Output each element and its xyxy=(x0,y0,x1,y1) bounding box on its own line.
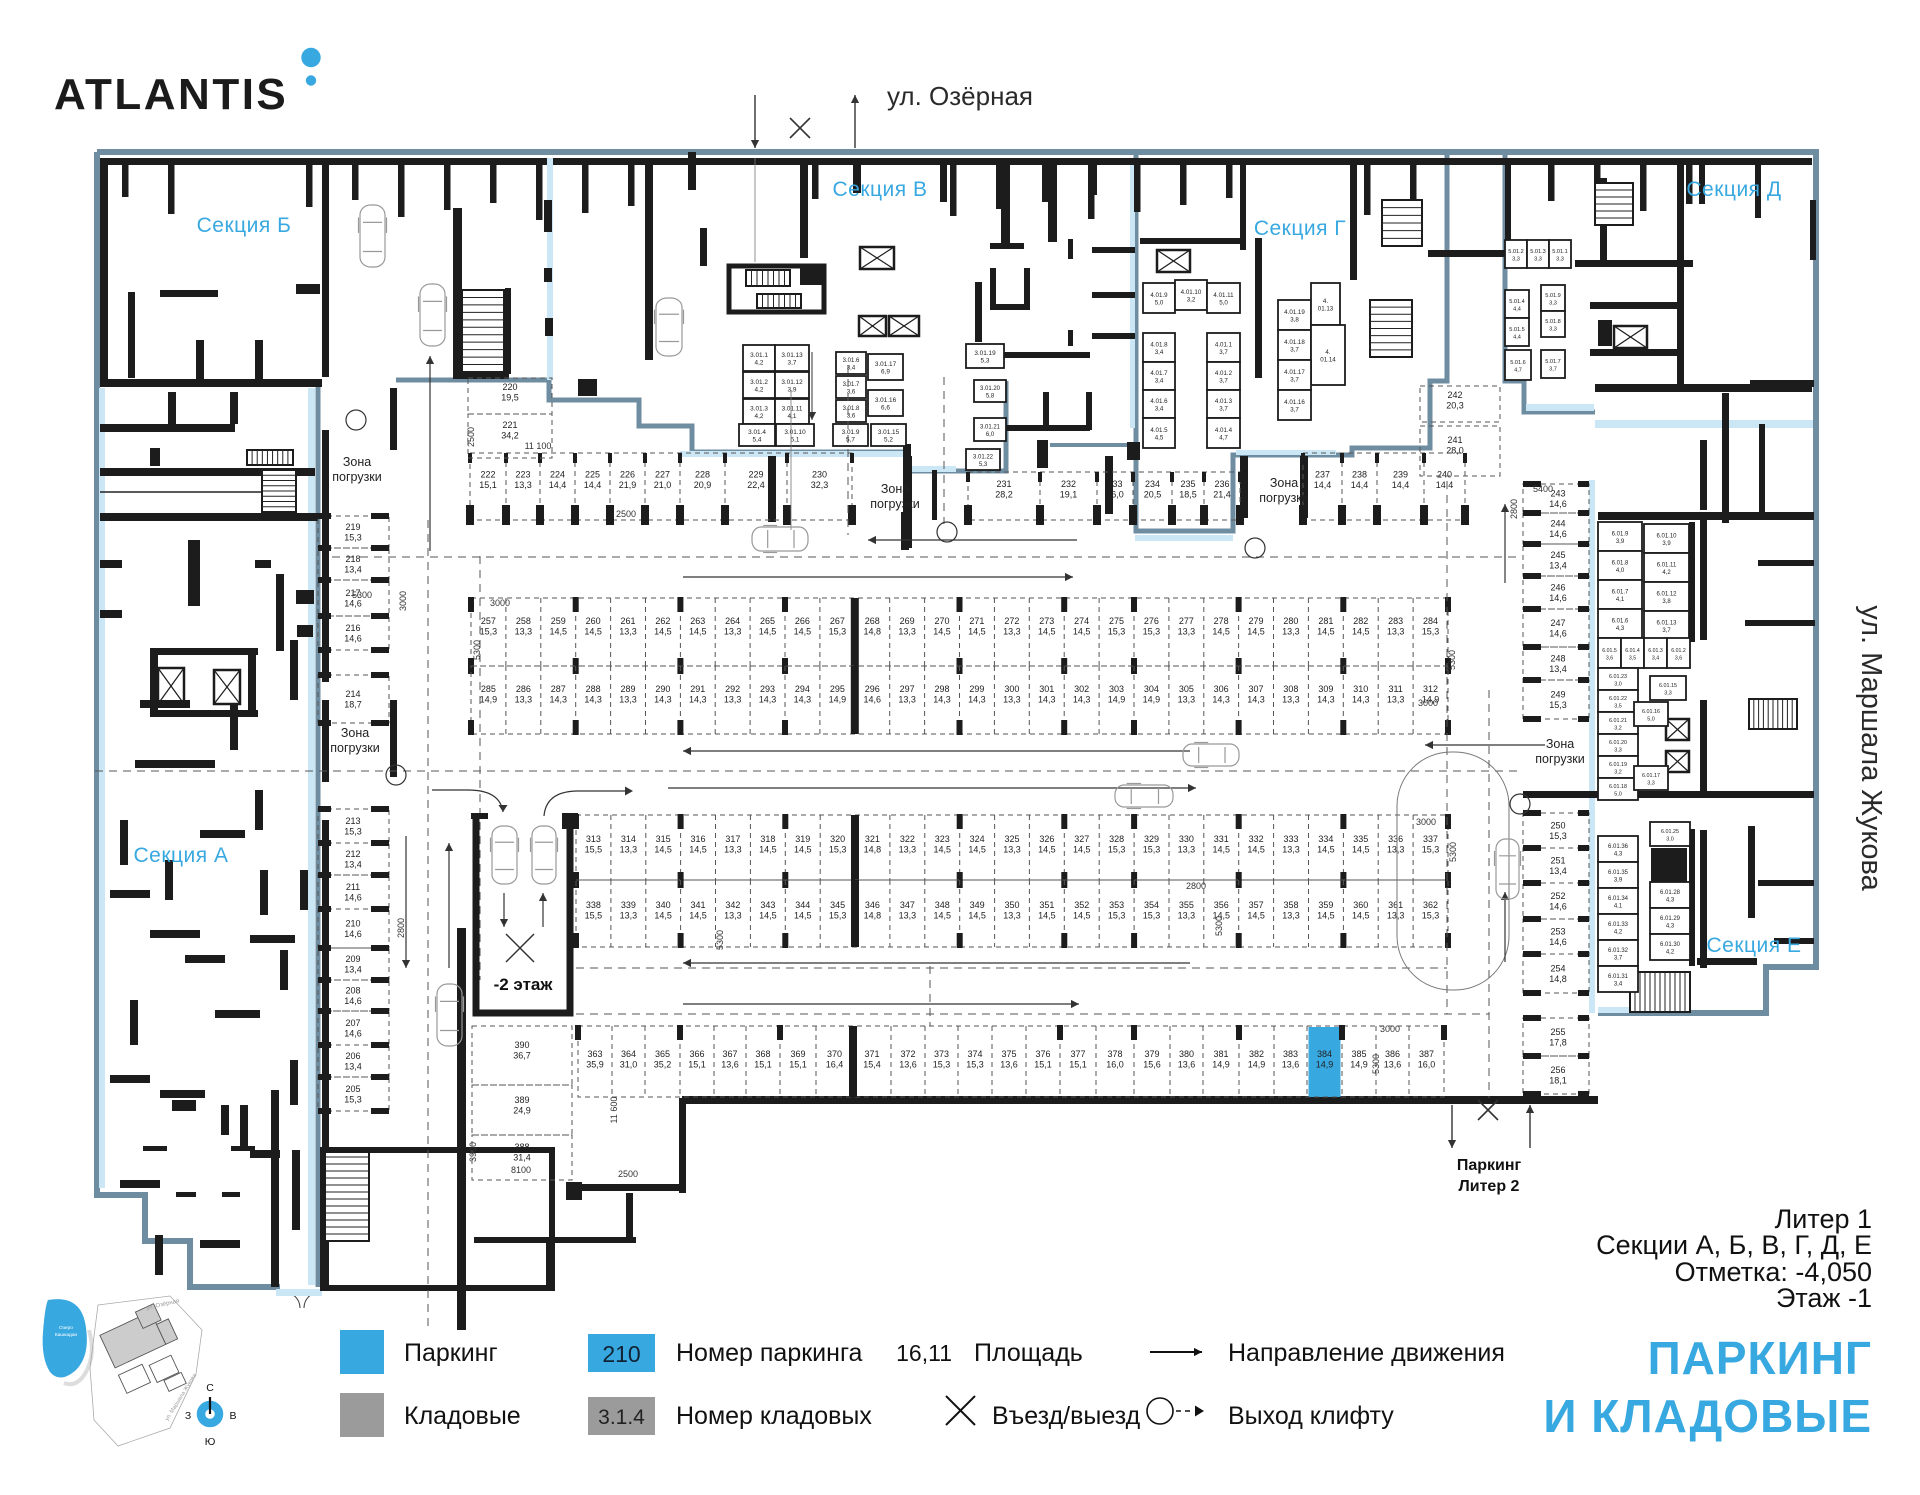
svg-text:14,3: 14,3 xyxy=(689,695,707,705)
svg-text:13,3: 13,3 xyxy=(1003,627,1021,637)
svg-text:280: 280 xyxy=(1283,616,1298,626)
svg-text:6.01.19: 6.01.19 xyxy=(1609,762,1627,768)
svg-text:Литер 2: Литер 2 xyxy=(1459,1178,1520,1195)
svg-text:338: 338 xyxy=(586,900,601,910)
svg-text:380: 380 xyxy=(1179,1049,1194,1059)
svg-text:31,0: 31,0 xyxy=(620,1060,638,1070)
svg-text:14,3: 14,3 xyxy=(1317,695,1335,705)
svg-text:306: 306 xyxy=(1214,684,1229,694)
svg-text:4,2: 4,2 xyxy=(1614,930,1623,936)
svg-text:14,6: 14,6 xyxy=(1549,629,1567,639)
svg-text:16,0: 16,0 xyxy=(1418,1060,1436,1070)
svg-text:4,2: 4,2 xyxy=(1666,950,1675,956)
svg-text:5300: 5300 xyxy=(1448,842,1458,862)
svg-text:4.01.5: 4.01.5 xyxy=(1150,427,1168,434)
svg-text:6.01.9: 6.01.9 xyxy=(1612,532,1629,538)
svg-text:18,7: 18,7 xyxy=(344,700,362,710)
svg-text:6.01.8: 6.01.8 xyxy=(1612,561,1629,567)
svg-text:ул. Маршала Жукова: ул. Маршала Жукова xyxy=(1855,605,1887,891)
svg-text:5.01.4: 5.01.4 xyxy=(1509,299,1525,305)
svg-text:326: 326 xyxy=(1039,834,1054,844)
svg-text:16,0: 16,0 xyxy=(1106,490,1124,500)
svg-text:341: 341 xyxy=(691,900,706,910)
svg-text:18,1: 18,1 xyxy=(1549,1076,1567,1086)
svg-text:14,5: 14,5 xyxy=(759,845,777,855)
svg-text:347: 347 xyxy=(900,900,915,910)
svg-text:4,1: 4,1 xyxy=(1616,597,1625,603)
svg-text:3.01.7: 3.01.7 xyxy=(843,382,860,388)
svg-text:340: 340 xyxy=(656,900,671,910)
svg-text:291: 291 xyxy=(690,684,705,694)
svg-text:15,3: 15,3 xyxy=(1422,911,1440,921)
svg-text:3,7: 3,7 xyxy=(1219,406,1228,413)
svg-text:274: 274 xyxy=(1074,616,1089,626)
svg-text:4,3: 4,3 xyxy=(1614,852,1623,858)
svg-text:3.01.1: 3.01.1 xyxy=(750,352,768,359)
svg-text:4,1: 4,1 xyxy=(1614,904,1623,910)
svg-text:ATLANTIS: ATLANTIS xyxy=(54,70,288,119)
svg-text:218: 218 xyxy=(345,554,360,564)
svg-text:3.01.4: 3.01.4 xyxy=(748,429,766,436)
svg-text:5.01.8: 5.01.8 xyxy=(1545,319,1561,325)
svg-text:268: 268 xyxy=(865,616,880,626)
svg-text:3.01.6: 3.01.6 xyxy=(843,358,860,364)
svg-text:Секция Д: Секция Д xyxy=(1686,178,1781,201)
svg-text:Кашкадан: Кашкадан xyxy=(55,1332,78,1338)
svg-text:353: 353 xyxy=(1109,900,1124,910)
svg-text:209: 209 xyxy=(345,954,360,964)
svg-text:14,5: 14,5 xyxy=(1073,911,1091,921)
svg-text:13,3: 13,3 xyxy=(1003,695,1021,705)
svg-text:219: 219 xyxy=(345,522,360,532)
svg-text:35,9: 35,9 xyxy=(586,1060,604,1070)
svg-text:14,4: 14,4 xyxy=(549,480,567,490)
svg-text:14,5: 14,5 xyxy=(794,627,812,637)
svg-text:336: 336 xyxy=(1388,834,1403,844)
svg-text:225: 225 xyxy=(585,470,600,480)
svg-text:погрузки: погрузки xyxy=(1259,491,1309,505)
svg-text:5,0: 5,0 xyxy=(1155,300,1164,307)
svg-text:352: 352 xyxy=(1074,900,1089,910)
svg-text:273: 273 xyxy=(1039,616,1054,626)
svg-text:13,3: 13,3 xyxy=(1387,911,1405,921)
svg-text:14,5: 14,5 xyxy=(1038,627,1056,637)
svg-text:349: 349 xyxy=(970,900,985,910)
svg-text:302: 302 xyxy=(1074,684,1089,694)
svg-text:248: 248 xyxy=(1550,654,1565,664)
svg-text:15,3: 15,3 xyxy=(1422,627,1440,637)
svg-text:Зона: Зона xyxy=(341,726,369,740)
svg-text:2800: 2800 xyxy=(1186,881,1206,891)
svg-text:382: 382 xyxy=(1249,1049,1264,1059)
svg-text:20,3: 20,3 xyxy=(1446,401,1464,411)
svg-text:14,4: 14,4 xyxy=(1436,480,1454,490)
svg-text:13,3: 13,3 xyxy=(1282,845,1300,855)
svg-text:245: 245 xyxy=(1550,550,1565,560)
svg-text:314: 314 xyxy=(621,834,636,844)
svg-text:14,3: 14,3 xyxy=(549,695,567,705)
svg-text:14,5: 14,5 xyxy=(759,627,777,637)
svg-text:4,3: 4,3 xyxy=(1666,924,1675,930)
svg-text:226: 226 xyxy=(620,470,635,480)
svg-text:2500: 2500 xyxy=(466,427,476,447)
svg-text:375: 375 xyxy=(1001,1049,1016,1059)
svg-text:14,5: 14,5 xyxy=(1038,845,1056,855)
svg-text:343: 343 xyxy=(760,900,775,910)
svg-text:275: 275 xyxy=(1109,616,1124,626)
svg-text:3,3: 3,3 xyxy=(1614,748,1622,754)
svg-text:Этаж -1: Этаж -1 xyxy=(1776,1283,1872,1313)
svg-text:3,4: 3,4 xyxy=(1652,656,1659,662)
svg-text:376: 376 xyxy=(1035,1049,1050,1059)
svg-text:Ю: Ю xyxy=(205,1436,216,1448)
svg-text:Секция Е: Секция Е xyxy=(1706,934,1801,957)
svg-text:4,2: 4,2 xyxy=(755,413,764,420)
svg-text:369: 369 xyxy=(790,1049,805,1059)
svg-text:Зона: Зона xyxy=(1270,476,1298,490)
svg-text:4.01.6: 4.01.6 xyxy=(1150,398,1168,405)
svg-text:14,5: 14,5 xyxy=(968,845,986,855)
svg-text:6.01.22: 6.01.22 xyxy=(1609,696,1627,702)
svg-text:13,4: 13,4 xyxy=(1549,664,1567,674)
svg-text:14,6: 14,6 xyxy=(344,929,362,939)
svg-text:14,5: 14,5 xyxy=(1352,911,1370,921)
svg-text:358: 358 xyxy=(1284,900,1299,910)
svg-text:13,6: 13,6 xyxy=(1178,1060,1196,1070)
svg-text:20,5: 20,5 xyxy=(1144,490,1162,500)
svg-text:276: 276 xyxy=(1144,616,1159,626)
svg-text:6.01.33: 6.01.33 xyxy=(1608,922,1629,928)
svg-text:5,1: 5,1 xyxy=(791,437,800,444)
svg-text:5300: 5300 xyxy=(472,640,482,660)
svg-text:погрузки: погрузки xyxy=(332,470,382,484)
svg-text:Номер паркинга: Номер паркинга xyxy=(676,1339,863,1367)
svg-text:17,8: 17,8 xyxy=(1549,1038,1567,1048)
svg-text:19,5: 19,5 xyxy=(501,393,519,403)
svg-text:13,3: 13,3 xyxy=(515,627,533,637)
svg-text:303: 303 xyxy=(1109,684,1124,694)
svg-text:Паркинг: Паркинг xyxy=(1457,1157,1522,1174)
svg-text:312: 312 xyxy=(1423,684,1438,694)
svg-text:4,7: 4,7 xyxy=(1219,435,1228,442)
svg-text:381: 381 xyxy=(1213,1049,1228,1059)
svg-text:3.01.16: 3.01.16 xyxy=(875,397,897,404)
svg-text:13,4: 13,4 xyxy=(1549,561,1567,571)
svg-text:5300: 5300 xyxy=(352,590,372,600)
svg-text:11 600: 11 600 xyxy=(609,1097,619,1124)
svg-text:3.01.12: 3.01.12 xyxy=(781,379,803,386)
svg-text:254: 254 xyxy=(1550,964,1565,974)
svg-text:20,9: 20,9 xyxy=(694,480,712,490)
svg-text:3,3: 3,3 xyxy=(1549,301,1557,307)
svg-text:13,3: 13,3 xyxy=(1387,845,1405,855)
svg-text:6,9: 6,9 xyxy=(881,369,890,376)
svg-text:323: 323 xyxy=(935,834,950,844)
svg-text:356: 356 xyxy=(1214,900,1229,910)
svg-text:361: 361 xyxy=(1388,900,1403,910)
svg-text:14,4: 14,4 xyxy=(1392,480,1410,490)
svg-text:Секции А, Б, В, Г, Д, Е: Секции А, Б, В, Г, Д, Е xyxy=(1596,1230,1872,1260)
svg-text:387: 387 xyxy=(1419,1049,1434,1059)
svg-text:4.01.2: 4.01.2 xyxy=(1215,370,1233,377)
svg-text:14,5: 14,5 xyxy=(1317,845,1335,855)
svg-text:3,8: 3,8 xyxy=(1290,317,1299,324)
svg-text:13,3: 13,3 xyxy=(724,695,742,705)
svg-text:С: С xyxy=(206,1382,214,1394)
svg-text:247: 247 xyxy=(1550,618,1565,628)
svg-text:371: 371 xyxy=(864,1049,879,1059)
svg-text:3,4: 3,4 xyxy=(1155,406,1164,413)
svg-text:В: В xyxy=(229,1410,236,1422)
svg-text:3,7: 3,7 xyxy=(1290,407,1299,414)
svg-text:386: 386 xyxy=(1385,1049,1400,1059)
svg-text:211: 211 xyxy=(346,882,360,892)
svg-text:286: 286 xyxy=(516,684,531,694)
svg-text:14,9: 14,9 xyxy=(1212,1060,1230,1070)
svg-text:6.01.34: 6.01.34 xyxy=(1608,896,1629,902)
svg-text:320: 320 xyxy=(830,834,845,844)
svg-text:241: 241 xyxy=(1447,435,1462,445)
svg-text:15,3: 15,3 xyxy=(1108,845,1126,855)
svg-text:Секция А: Секция А xyxy=(133,844,228,867)
svg-text:222: 222 xyxy=(480,470,495,480)
svg-text:16,11: 16,11 xyxy=(896,1340,952,1366)
svg-text:362: 362 xyxy=(1423,900,1438,910)
svg-text:379: 379 xyxy=(1144,1049,1159,1059)
svg-text:384: 384 xyxy=(1317,1049,1332,1059)
svg-text:355: 355 xyxy=(1179,900,1194,910)
svg-text:6.01.30: 6.01.30 xyxy=(1660,942,1681,948)
svg-text:3.01.20: 3.01.20 xyxy=(980,386,1001,392)
svg-text:287: 287 xyxy=(551,684,566,694)
svg-text:3,3: 3,3 xyxy=(1549,327,1557,333)
svg-text:373: 373 xyxy=(934,1049,949,1059)
svg-text:4.01.11: 4.01.11 xyxy=(1213,292,1234,299)
svg-text:6.01.23: 6.01.23 xyxy=(1609,674,1627,680)
svg-text:15,1: 15,1 xyxy=(688,1060,706,1070)
svg-text:15,3: 15,3 xyxy=(1143,845,1161,855)
svg-text:6,0: 6,0 xyxy=(986,432,995,438)
svg-text:5.01.5: 5.01.5 xyxy=(1509,327,1525,333)
svg-text:14,8: 14,8 xyxy=(863,627,881,637)
svg-text:6.01.35: 6.01.35 xyxy=(1608,870,1629,876)
svg-text:Зона: Зона xyxy=(881,482,909,496)
svg-text:223: 223 xyxy=(515,470,530,480)
svg-text:5.01.3: 5.01.3 xyxy=(1530,249,1546,255)
svg-text:14,9: 14,9 xyxy=(1316,1060,1334,1070)
svg-text:13,3: 13,3 xyxy=(619,627,637,637)
svg-text:15,3: 15,3 xyxy=(344,1095,362,1105)
svg-text:15,5: 15,5 xyxy=(585,845,603,855)
svg-text:5,8: 5,8 xyxy=(986,394,995,400)
svg-text:220: 220 xyxy=(502,382,517,392)
svg-text:погрузки: погрузки xyxy=(870,497,920,511)
svg-text:313: 313 xyxy=(586,834,601,844)
svg-text:3,7: 3,7 xyxy=(1549,367,1557,373)
svg-text:344: 344 xyxy=(795,900,810,910)
svg-text:3,2: 3,2 xyxy=(1614,726,1622,732)
svg-text:308: 308 xyxy=(1283,684,1298,694)
svg-text:31,4: 31,4 xyxy=(513,1153,531,1163)
svg-text:21,4: 21,4 xyxy=(1213,490,1231,500)
svg-text:6.01.21: 6.01.21 xyxy=(1609,718,1627,724)
svg-text:13,3: 13,3 xyxy=(1282,911,1300,921)
svg-text:257: 257 xyxy=(481,616,496,626)
svg-text:5400: 5400 xyxy=(1533,484,1553,494)
svg-text:5,3: 5,3 xyxy=(979,462,988,468)
svg-text:4,2: 4,2 xyxy=(1662,570,1671,576)
svg-text:234: 234 xyxy=(1145,479,1160,489)
svg-text:357: 357 xyxy=(1249,900,1264,910)
svg-text:15,4: 15,4 xyxy=(863,1060,881,1070)
svg-text:3.01.9: 3.01.9 xyxy=(842,429,860,436)
svg-text:259: 259 xyxy=(551,616,566,626)
svg-text:6.01.36: 6.01.36 xyxy=(1608,844,1629,850)
svg-text:3,0: 3,0 xyxy=(1666,837,1674,843)
svg-text:13,3: 13,3 xyxy=(899,845,917,855)
svg-text:14,6: 14,6 xyxy=(1549,593,1567,603)
svg-text:4,1: 4,1 xyxy=(788,413,797,420)
svg-text:15,3: 15,3 xyxy=(344,827,362,837)
svg-text:13,4: 13,4 xyxy=(344,1062,362,1072)
svg-text:14,3: 14,3 xyxy=(933,695,951,705)
svg-text:5300: 5300 xyxy=(1447,650,1457,670)
svg-text:267: 267 xyxy=(830,616,845,626)
svg-text:14,5: 14,5 xyxy=(1247,627,1265,637)
svg-text:13,4: 13,4 xyxy=(344,965,362,975)
svg-text:304: 304 xyxy=(1144,684,1159,694)
svg-text:3.01.3: 3.01.3 xyxy=(750,406,768,413)
svg-text:346: 346 xyxy=(865,900,880,910)
svg-text:13,3: 13,3 xyxy=(1178,911,1196,921)
svg-text:13,3: 13,3 xyxy=(620,845,638,855)
svg-text:3.01.2: 3.01.2 xyxy=(750,379,768,386)
svg-text:3900: 3900 xyxy=(468,1142,478,1162)
svg-text:3,6: 3,6 xyxy=(1606,656,1613,662)
svg-text:13,3: 13,3 xyxy=(899,911,917,921)
svg-text:348: 348 xyxy=(935,900,950,910)
svg-text:15,1: 15,1 xyxy=(754,1060,772,1070)
svg-text:4,2: 4,2 xyxy=(755,360,764,367)
svg-text:3,2: 3,2 xyxy=(1614,770,1622,776)
svg-text:342: 342 xyxy=(725,900,740,910)
svg-text:6.01.18: 6.01.18 xyxy=(1609,784,1627,790)
svg-text:3000: 3000 xyxy=(1418,698,1438,708)
svg-text:261: 261 xyxy=(621,616,636,626)
svg-text:14,5: 14,5 xyxy=(933,845,951,855)
svg-text:298: 298 xyxy=(935,684,950,694)
svg-text:351: 351 xyxy=(1039,900,1054,910)
svg-text:4.01.17: 4.01.17 xyxy=(1284,369,1305,376)
svg-text:318: 318 xyxy=(760,834,775,844)
svg-text:15,3: 15,3 xyxy=(480,627,498,637)
svg-text:6.01.17: 6.01.17 xyxy=(1642,773,1660,779)
svg-text:321: 321 xyxy=(865,834,880,844)
svg-text:14,5: 14,5 xyxy=(549,627,567,637)
svg-text:350: 350 xyxy=(1004,900,1019,910)
svg-text:3,7: 3,7 xyxy=(1219,349,1228,356)
svg-text:288: 288 xyxy=(586,684,601,694)
svg-text:289: 289 xyxy=(621,684,636,694)
svg-text:погрузки: погрузки xyxy=(1535,752,1585,766)
svg-text:14,9: 14,9 xyxy=(1143,695,1161,705)
svg-text:З: З xyxy=(185,1410,191,1422)
svg-text:2500: 2500 xyxy=(616,509,636,519)
svg-text:3,3: 3,3 xyxy=(1512,257,1520,263)
svg-text:6.01.32: 6.01.32 xyxy=(1608,948,1629,954)
svg-text:4.01.8: 4.01.8 xyxy=(1150,342,1168,349)
svg-text:14,5: 14,5 xyxy=(1073,845,1091,855)
svg-text:14,5: 14,5 xyxy=(689,627,707,637)
svg-text:4,5: 4,5 xyxy=(1155,435,1164,442)
svg-text:4.: 4. xyxy=(1325,349,1330,356)
svg-text:3,3: 3,3 xyxy=(1647,781,1655,787)
svg-text:15,3: 15,3 xyxy=(829,627,847,637)
svg-text:6.01.13: 6.01.13 xyxy=(1656,621,1677,627)
svg-text:3,3: 3,3 xyxy=(1534,257,1542,263)
svg-text:6.01.10: 6.01.10 xyxy=(1656,534,1677,540)
svg-text:360: 360 xyxy=(1353,900,1368,910)
svg-text:11 100: 11 100 xyxy=(525,441,552,451)
svg-text:3,0: 3,0 xyxy=(1614,682,1622,688)
svg-text:324: 324 xyxy=(970,834,985,844)
svg-text:3,7: 3,7 xyxy=(1290,347,1299,354)
svg-text:5,4: 5,4 xyxy=(753,437,762,444)
svg-text:18,5: 18,5 xyxy=(1179,490,1197,500)
svg-text:4.01.4: 4.01.4 xyxy=(1215,427,1233,434)
svg-text:14,6: 14,6 xyxy=(344,634,362,644)
svg-text:13,4: 13,4 xyxy=(344,565,362,575)
svg-text:14,5: 14,5 xyxy=(759,911,777,921)
svg-text:255: 255 xyxy=(1550,1027,1565,1037)
svg-text:28,2: 28,2 xyxy=(995,490,1013,500)
svg-text:Въезд/выезд: Въезд/выезд xyxy=(992,1402,1141,1430)
svg-text:3.01.11: 3.01.11 xyxy=(782,406,803,413)
svg-text:8100: 8100 xyxy=(511,1165,531,1175)
svg-text:339: 339 xyxy=(621,900,636,910)
svg-text:Выход клифту: Выход клифту xyxy=(1228,1402,1394,1430)
svg-text:5,0: 5,0 xyxy=(1647,717,1655,723)
svg-text:294: 294 xyxy=(795,684,810,694)
svg-text:3.01.15: 3.01.15 xyxy=(878,429,900,436)
svg-text:13,3: 13,3 xyxy=(724,845,742,855)
svg-text:221: 221 xyxy=(502,420,517,430)
svg-text:14,9: 14,9 xyxy=(1350,1060,1368,1070)
svg-text:300: 300 xyxy=(1004,684,1019,694)
svg-text:3,9: 3,9 xyxy=(1662,541,1671,547)
svg-text:316: 316 xyxy=(691,834,706,844)
svg-text:14,5: 14,5 xyxy=(1352,845,1370,855)
svg-text:3,2: 3,2 xyxy=(1187,297,1196,304)
svg-text:4,3: 4,3 xyxy=(1666,898,1675,904)
svg-text:374: 374 xyxy=(967,1049,982,1059)
svg-text:2500: 2500 xyxy=(618,1169,638,1179)
svg-text:210: 210 xyxy=(345,919,360,929)
svg-text:311: 311 xyxy=(1388,684,1402,694)
svg-text:14,3: 14,3 xyxy=(1247,695,1265,705)
svg-text:244: 244 xyxy=(1550,519,1565,529)
svg-text:6.01.7: 6.01.7 xyxy=(1612,590,1629,596)
svg-text:3,3: 3,3 xyxy=(1556,257,1564,263)
svg-text:232: 232 xyxy=(1061,479,1076,489)
svg-text:266: 266 xyxy=(795,616,810,626)
svg-text:337: 337 xyxy=(1423,834,1438,844)
svg-text:14,5: 14,5 xyxy=(1212,845,1230,855)
svg-text:14,6: 14,6 xyxy=(1549,499,1567,509)
svg-text:14,9: 14,9 xyxy=(1108,695,1126,705)
svg-text:3,5: 3,5 xyxy=(1614,704,1622,710)
svg-text:3,7: 3,7 xyxy=(1662,628,1671,634)
